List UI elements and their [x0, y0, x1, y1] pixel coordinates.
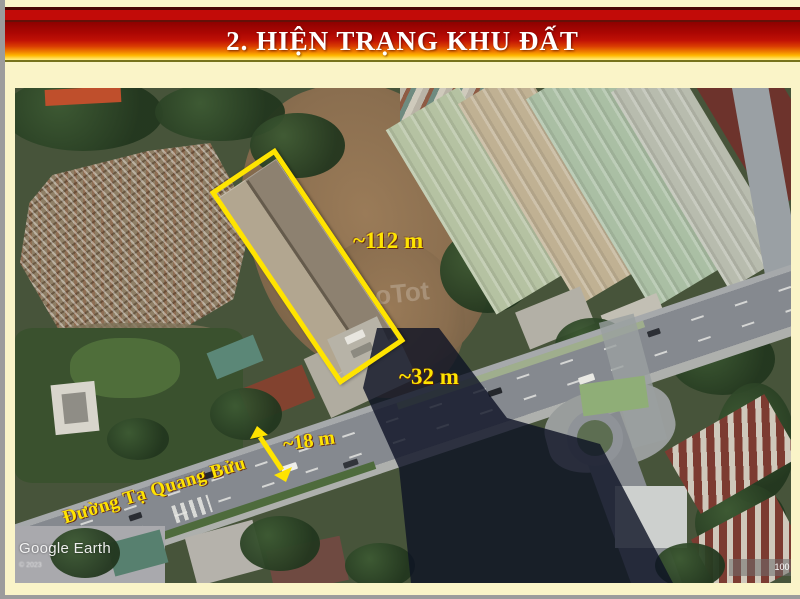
presentation-slide: 2. HIỆN TRẠNG KHU ĐẤT [0, 0, 800, 599]
copyright-watermark: © 2023 [19, 562, 42, 569]
tree [240, 516, 320, 571]
cemetery-area [20, 143, 252, 343]
white-building-core [61, 392, 88, 424]
satellite-map: oTot ~112 m ~32 m ~18 m Đường Tạ Quang B… [15, 88, 791, 583]
header-divider-bottom [5, 60, 800, 62]
vehicle [647, 328, 661, 338]
label-width-32m: ~32 m [399, 364, 459, 390]
header-red-strip [5, 10, 800, 20]
google-earth-watermark: Google Earth [19, 540, 111, 557]
tree [345, 543, 415, 583]
page-title: 2. HIỆN TRẠNG KHU ĐẤT [5, 22, 800, 60]
tree [107, 418, 169, 460]
scale-indicator: 100 ft [729, 559, 791, 576]
label-length-112m: ~112 m [353, 228, 423, 254]
vehicle [128, 512, 142, 522]
